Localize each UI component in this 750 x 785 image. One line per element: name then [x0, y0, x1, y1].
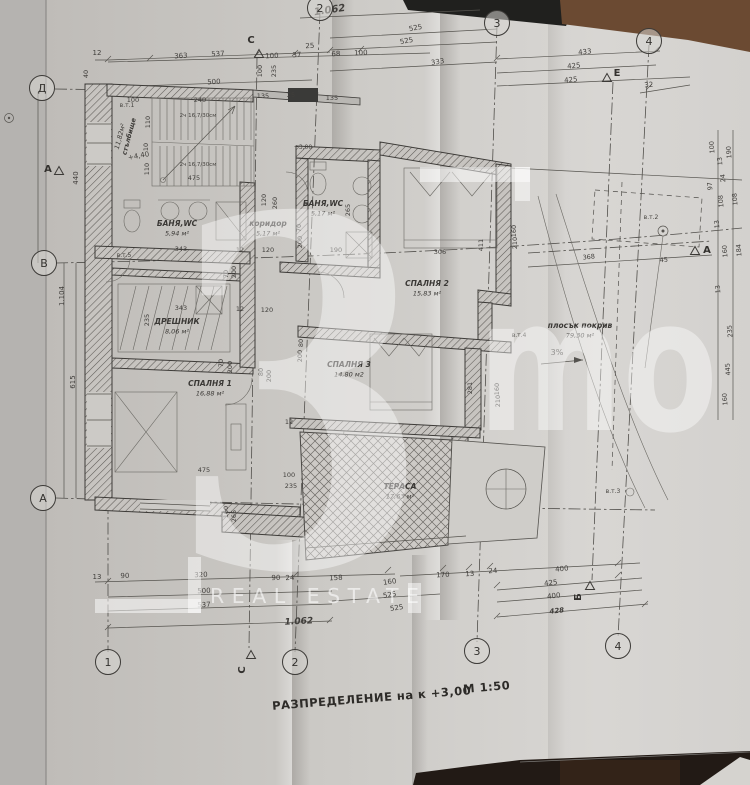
watermark-bracket: [515, 167, 530, 201]
dimension-label: 433: [578, 47, 592, 56]
grid-marker-label: 3: [494, 17, 501, 30]
dimension-label: 13: [465, 570, 474, 578]
axis-letter: С: [247, 35, 254, 46]
dimension-label: 108: [730, 193, 739, 206]
dimension-label: 306: [434, 248, 446, 256]
dimension-label: 190: [724, 146, 733, 159]
dimension-label: 235: [725, 325, 734, 338]
dimension-label: 440: [72, 171, 80, 184]
dimension-label: 235: [143, 314, 151, 326]
dimension-label: 615: [69, 375, 77, 388]
dimension-label: 97: [706, 182, 715, 191]
dimension-label: 425: [544, 578, 558, 587]
annotation-label: в.т.3: [606, 488, 621, 495]
dimension-label: 500: [207, 78, 221, 87]
annotation-label: в.т.1: [120, 102, 135, 109]
watermark-subtitle: REAL ESTATE: [210, 584, 426, 608]
dimension-label: 400: [547, 591, 561, 600]
dimension-label: 24: [488, 567, 498, 575]
grid-marker-label: В: [40, 257, 48, 270]
dimension-label: 25: [287, 91, 295, 99]
dimension-label: 240: [194, 96, 206, 104]
watermark-mo: mo: [478, 258, 718, 474]
dimension-label: 12: [93, 49, 102, 57]
dimension-label: 537: [211, 50, 225, 59]
axis-letter: А: [44, 164, 52, 175]
grid-marker-label: 4: [615, 640, 622, 653]
dimension-label: 170: [436, 571, 450, 580]
dimension-label: 24: [719, 174, 728, 183]
dimension-label: 13: [716, 157, 725, 166]
grid-marker-label: Д: [38, 82, 47, 95]
dimension-label: 25: [305, 42, 314, 50]
dimension-label: 428: [549, 606, 564, 615]
watermark-bracket: [95, 599, 201, 613]
dimension-label: 68: [331, 50, 340, 58]
dimension-label: 210: [511, 237, 519, 249]
dimension-label: 160: [510, 225, 518, 237]
grid-marker-label: 1: [105, 656, 112, 669]
dimension-label: 100: [707, 141, 716, 154]
grid-marker-label: 3: [474, 645, 481, 658]
grid-marker-label: 4: [646, 35, 653, 48]
dimension-label: 160: [720, 393, 729, 406]
axis-letter: Б: [573, 593, 584, 601]
dimension-label: 425: [564, 75, 578, 84]
dimension-label: 135: [257, 92, 269, 100]
annotation-label: в.т.2: [644, 214, 659, 221]
table-bottom-tint: [560, 760, 680, 785]
axis-letter: Е: [614, 68, 621, 79]
dimension-label: 32: [644, 81, 654, 90]
dimension-label: 281: [466, 382, 474, 394]
dimension-label: 108: [716, 195, 725, 208]
grid-marker-label: А: [39, 492, 47, 505]
dimension-label: 110: [144, 116, 152, 128]
dimension-label: 1.104: [58, 285, 66, 306]
dimension-label: 135: [326, 94, 338, 102]
annotation-label: в.т.5: [117, 252, 132, 259]
dimension-label: 425: [567, 61, 581, 70]
window-gap: [87, 122, 111, 166]
plan-svg: 1.06253750036312100372568100525525333433…: [0, 0, 750, 785]
dimension-label: 100: [256, 65, 264, 77]
grid-marker-label: 2: [317, 2, 324, 15]
paper-left-strip: [0, 0, 46, 785]
dimension-label: 100: [354, 49, 368, 58]
drain-dot: [662, 230, 665, 233]
floor-plan-photo: 1.06253750036312100372568100525525333433…: [0, 0, 750, 785]
dimension-label: 411: [477, 239, 485, 251]
dimension-label: 160: [720, 245, 729, 258]
dimension-label: 13: [93, 573, 102, 581]
datum-dot: [8, 117, 10, 119]
dimension-label: 445: [723, 363, 732, 376]
dimension-label: 363: [174, 52, 188, 61]
dimension-label: 400: [555, 564, 569, 573]
axis-letter: А: [703, 245, 711, 256]
dimension-label: 90: [120, 572, 129, 580]
dimension-label: 110: [143, 163, 151, 175]
dimension-label: 13: [713, 220, 722, 229]
dimension-label: 184: [734, 244, 743, 257]
dimension-label: 100: [265, 52, 279, 61]
dimension-label: 40: [82, 70, 90, 78]
watermark-bracket: [420, 167, 530, 182]
dimension-label: 235: [270, 65, 278, 77]
dimension-label: 37: [292, 51, 301, 59]
